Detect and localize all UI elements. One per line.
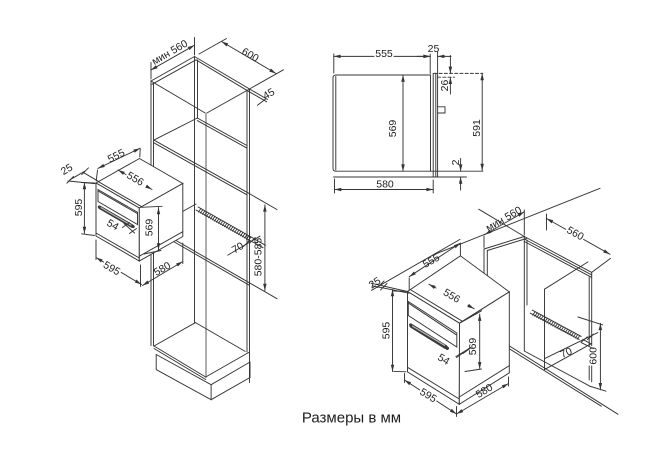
svg-text:595: 595 xyxy=(73,199,85,217)
svg-text:595: 595 xyxy=(380,322,392,340)
svg-text:555: 555 xyxy=(375,48,393,60)
svg-text:580: 580 xyxy=(152,260,173,279)
svg-text:600: 600 xyxy=(588,347,600,365)
svg-text:600: 600 xyxy=(240,46,261,65)
svg-text:555: 555 xyxy=(106,147,127,166)
svg-text:Размеры в мм: Размеры в мм xyxy=(302,409,401,426)
svg-text:25: 25 xyxy=(59,161,75,177)
svg-text:26: 26 xyxy=(439,80,451,92)
svg-text:мин 560: мин 560 xyxy=(484,204,524,234)
svg-text:25: 25 xyxy=(367,275,383,292)
svg-text:569: 569 xyxy=(467,338,479,356)
svg-text:555: 555 xyxy=(421,252,442,271)
svg-text:560: 560 xyxy=(565,224,586,243)
svg-text:591: 591 xyxy=(471,119,483,137)
svg-text:2: 2 xyxy=(450,159,462,165)
svg-text:70: 70 xyxy=(559,345,575,361)
svg-text:580: 580 xyxy=(376,178,394,190)
svg-text:569: 569 xyxy=(387,120,399,138)
svg-text:70: 70 xyxy=(230,240,246,256)
svg-text:569: 569 xyxy=(143,219,155,237)
svg-text:25: 25 xyxy=(428,43,440,55)
